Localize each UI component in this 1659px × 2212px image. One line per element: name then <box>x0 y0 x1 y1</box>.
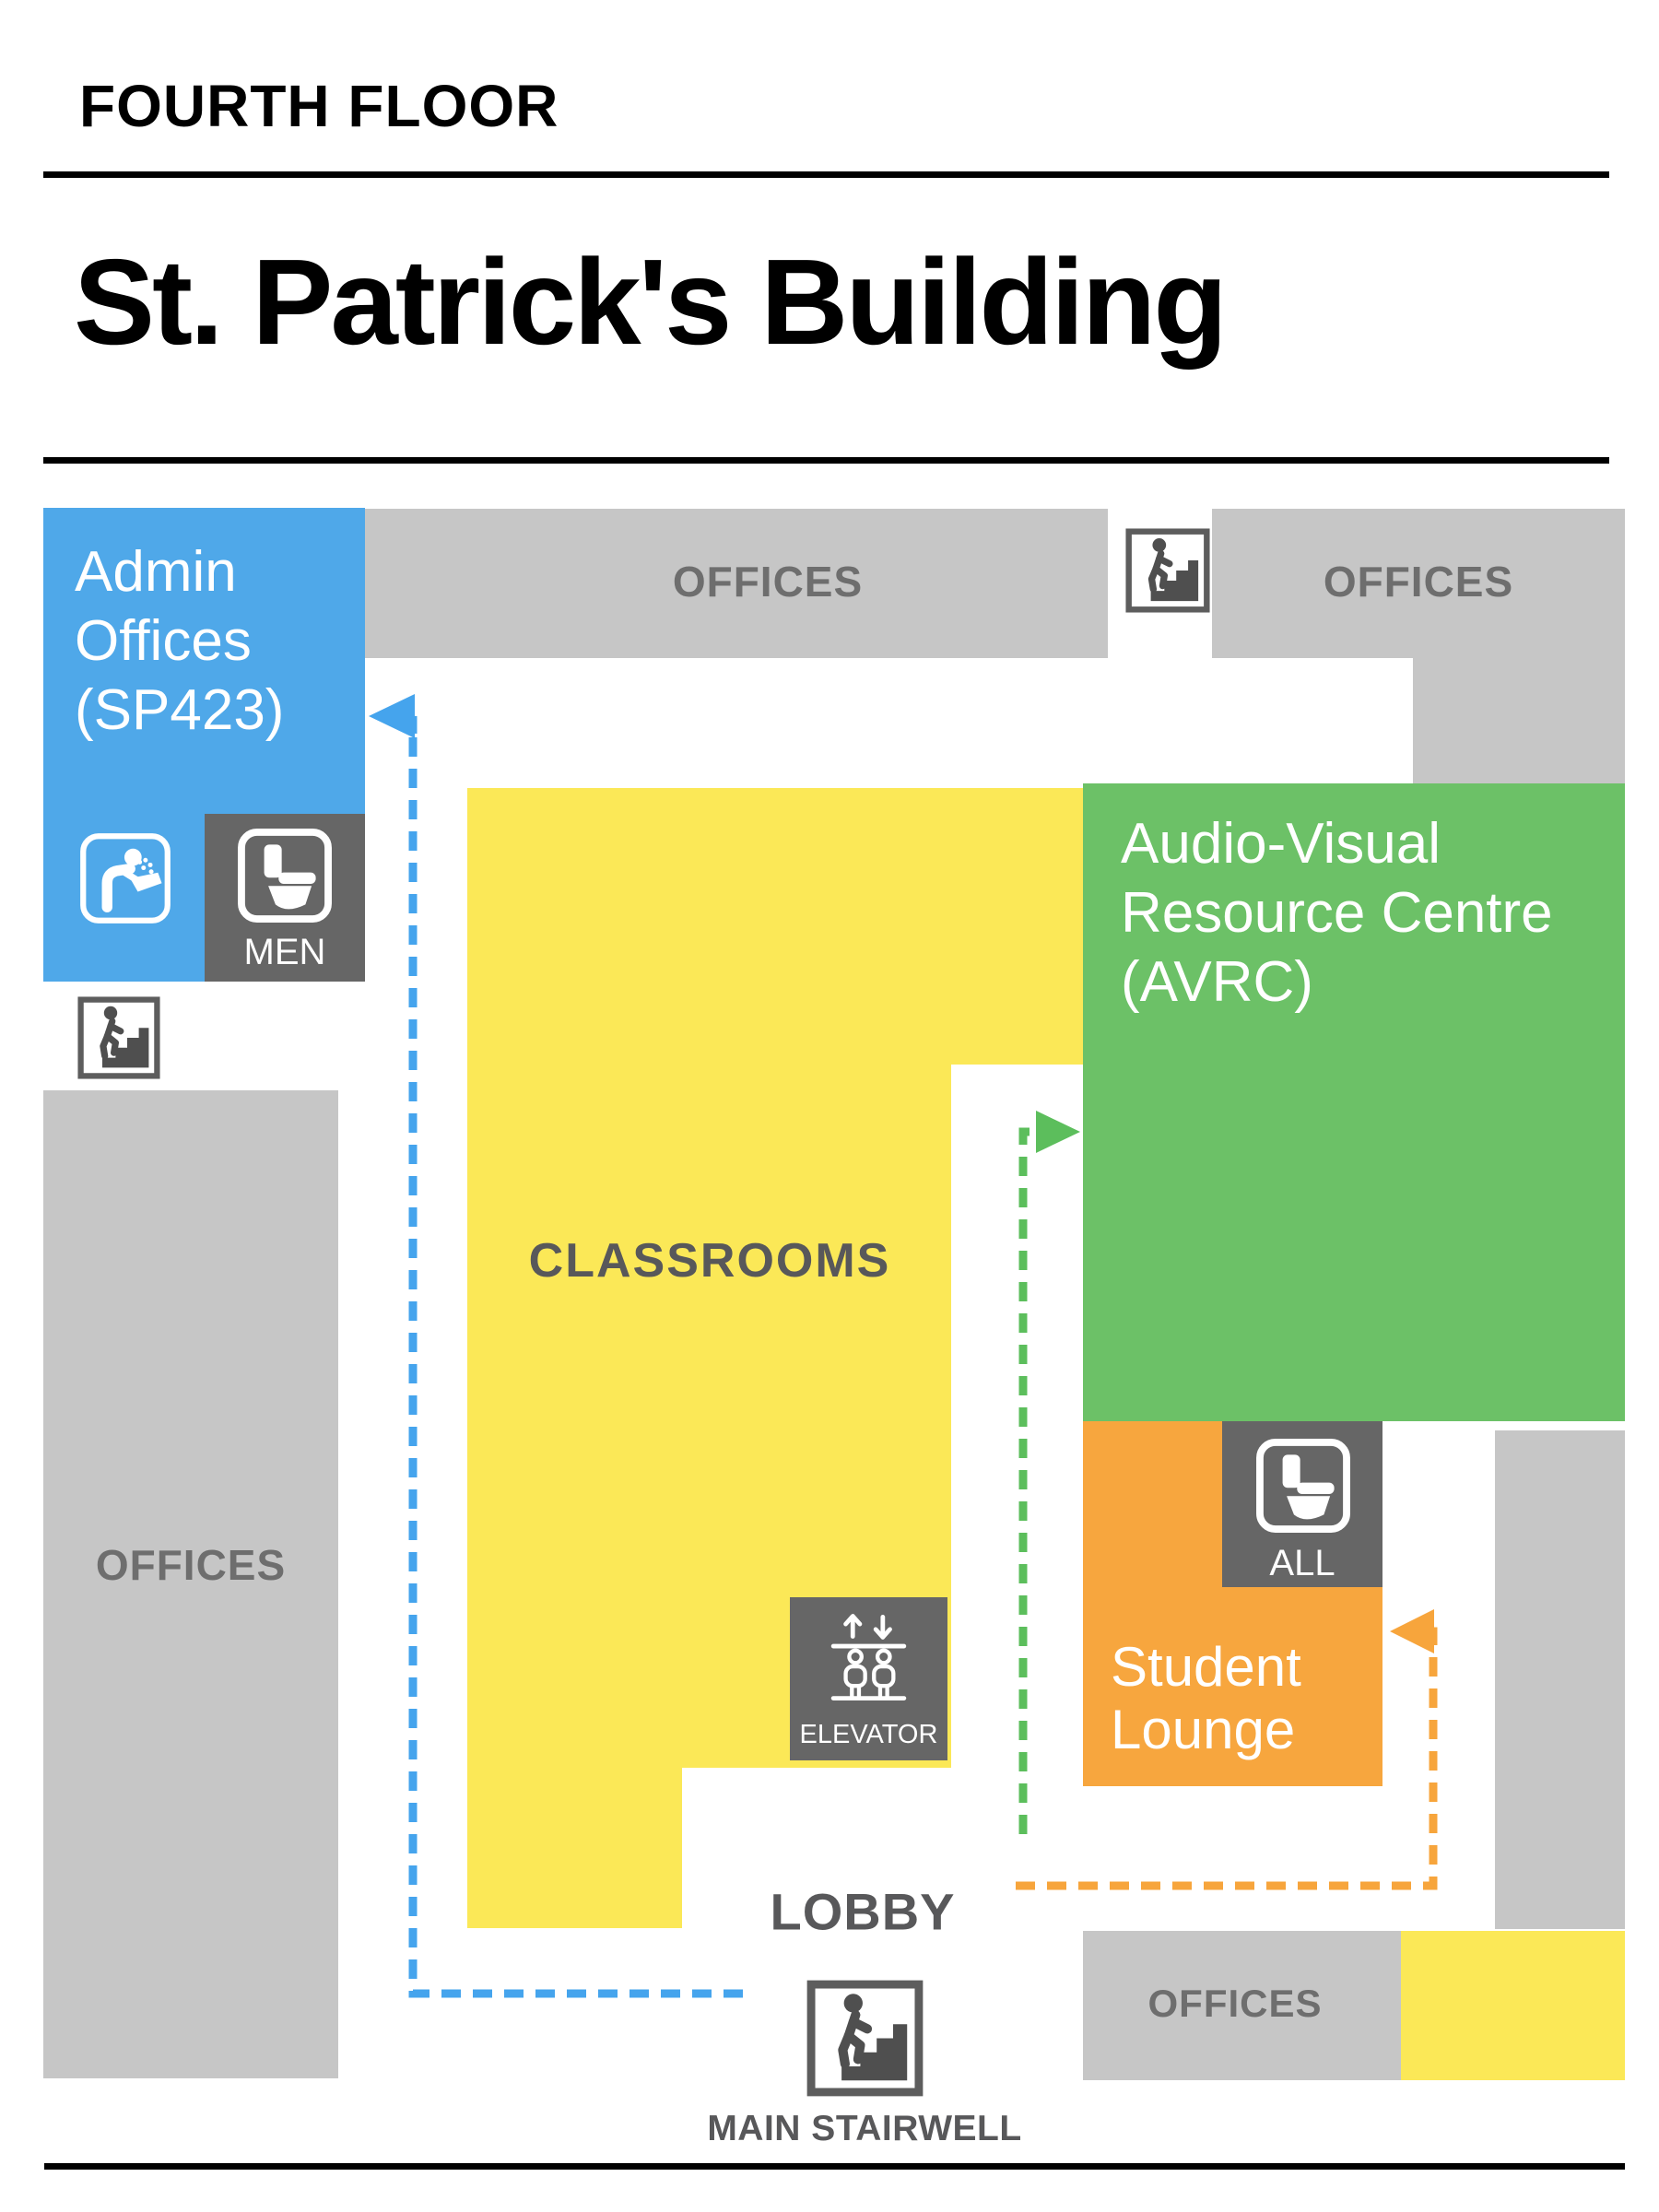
route-to-avrc <box>1023 1132 1038 1834</box>
student-lounge-label: Student Lounge <box>1111 1636 1301 1761</box>
stairs-icon <box>77 996 160 1079</box>
stairs-icon <box>1125 528 1210 613</box>
floor-label: FOURTH FLOOR <box>79 72 559 140</box>
header-divider-top <box>43 171 1609 178</box>
lobby-label: LOBBY <box>771 1882 956 1942</box>
right-corridor-region <box>1495 1430 1625 1929</box>
all-restroom-label: ALL <box>1222 1543 1382 1584</box>
offices-top-right-region-extension <box>1413 658 1625 783</box>
classrooms-label: CLASSROOMS <box>529 1233 891 1288</box>
elevator-label: ELEVATOR <box>790 1720 947 1750</box>
classrooms-region <box>467 788 1083 1065</box>
classrooms-region-left <box>467 1065 682 1928</box>
header-divider-bottom <box>43 457 1609 464</box>
elevator-box: ELEVATOR <box>790 1597 947 1760</box>
page-title: St. Patrick's Building <box>74 232 1225 371</box>
toilet-icon <box>1252 1434 1355 1537</box>
orange-arrowhead-icon <box>1390 1609 1434 1653</box>
classrooms-bottom-right-patch <box>1401 1931 1625 2080</box>
footer-divider <box>44 2163 1625 2170</box>
toilet-icon <box>233 824 336 927</box>
mens-restroom-box: MEN <box>205 814 365 982</box>
avrc-label: Audio-Visual Resource Centre (AVRC) <box>1121 809 1553 1017</box>
main-stairwell-label: MAIN STAIRWELL <box>707 2109 1021 2149</box>
blue-arrowhead-icon <box>369 694 415 738</box>
mens-restroom-label: MEN <box>205 932 365 973</box>
floor-plan-page: FOURTH FLOOR St. Patrick's Building <box>0 0 1659 2212</box>
all-gender-restroom-box: ALL <box>1222 1421 1382 1587</box>
main-stairwell-icon <box>806 1980 924 2097</box>
offices-top-label: OFFICES <box>673 557 863 606</box>
offices-bottom-right-label: OFFICES <box>1147 1982 1322 2026</box>
water-fountain-icon <box>77 830 173 926</box>
offices-left-label: OFFICES <box>96 1540 286 1590</box>
elevator-icon <box>816 1605 922 1711</box>
offices-top-right-label: OFFICES <box>1324 557 1513 606</box>
green-arrowhead-icon <box>1036 1111 1080 1153</box>
admin-offices-label: Admin Offices (SP423) <box>75 537 284 745</box>
